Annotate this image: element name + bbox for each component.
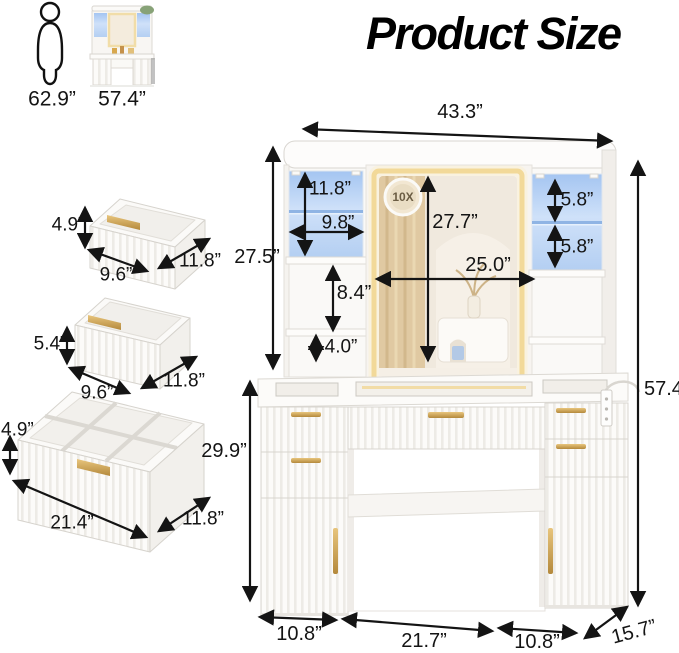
right-shelf-board-lower (529, 337, 605, 344)
dim-arrow-right-pedestal-width (499, 628, 576, 633)
left-shelf-board-lower (286, 329, 366, 336)
right-drawer1-handle (556, 408, 586, 413)
vanity-illustration (258, 141, 639, 616)
left-door-handle (333, 528, 338, 574)
thumb-led-shelf-left (94, 13, 107, 37)
glass-insert-left (276, 383, 338, 396)
dim-arrow-depth (585, 607, 627, 638)
thumb-mirror (109, 14, 135, 46)
right-shelf-board-upper (529, 270, 605, 277)
left-drawer2-handle (291, 458, 321, 463)
reflected-vase (468, 296, 480, 318)
left-drawer1-handle (291, 412, 321, 417)
reflected-nightstand (438, 318, 508, 362)
led-glass-cabinet-left (289, 171, 363, 257)
right-drawer2-handle (556, 444, 586, 449)
center-section (348, 407, 545, 611)
person-head (41, 3, 59, 21)
magnifying-mirror-lens (390, 184, 416, 210)
thumb-plant (140, 6, 154, 15)
right-door-handle (548, 528, 553, 574)
illustration-layer (0, 0, 679, 653)
center-drawer-handle (428, 412, 464, 418)
person-body (38, 23, 62, 84)
drawer-bottom-illustration (18, 392, 204, 552)
dim-arrow-overall-width (304, 129, 611, 141)
hutch-left-side (284, 165, 289, 377)
dim-arrow-knee-space-width (343, 619, 492, 631)
dim-arrow-left-pedestal-width (260, 617, 336, 620)
led-glass-cabinet-right (532, 174, 602, 270)
thumb-led-shelf-right (137, 13, 150, 37)
left-pedestal (261, 407, 348, 616)
person-icon (38, 3, 62, 84)
drawer-top-illustration (90, 199, 205, 289)
hutch-top-panel (284, 141, 616, 168)
knee-space (348, 449, 545, 611)
page-title: Product Size (366, 8, 621, 60)
product-thumbnail (90, 6, 155, 88)
left-shelf-board-upper (286, 257, 366, 264)
glass-insert-right (543, 380, 607, 393)
desktop-led-strip (362, 386, 526, 389)
product-size-infographic: Product Size 62.9” 57.4” 4.9” 9.6” 11.8”… (0, 0, 679, 653)
drawer-middle-illustration (75, 298, 190, 389)
right-pedestal (545, 403, 628, 608)
desktop (258, 373, 628, 407)
